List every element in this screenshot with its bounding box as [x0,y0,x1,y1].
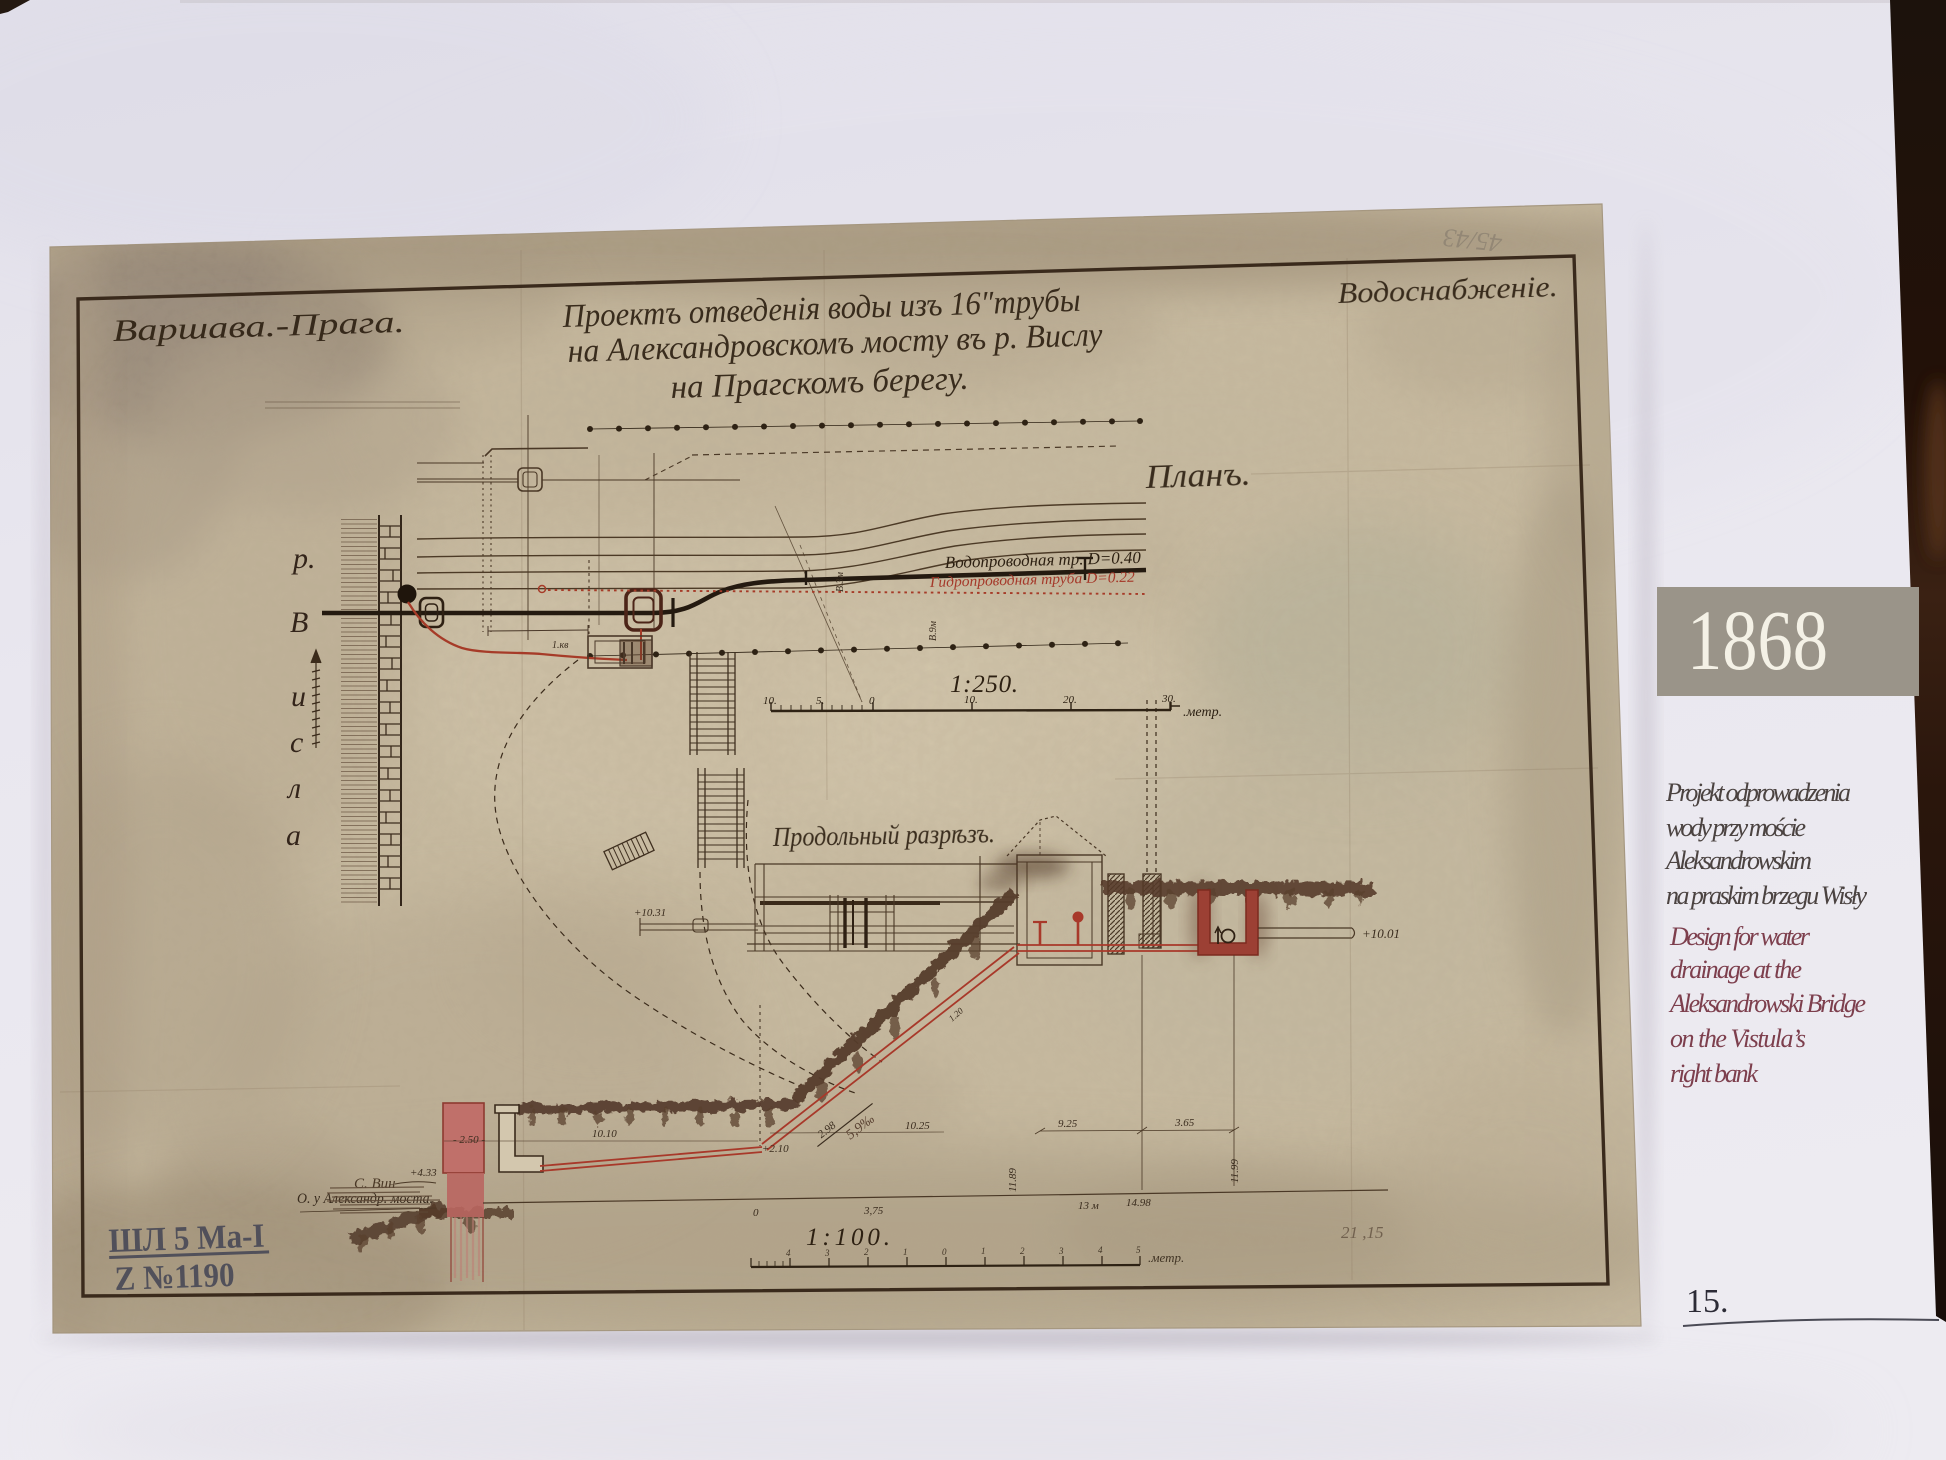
svg-text:1868: 1868 [1687,592,1828,688]
svg-text:11.99: 11.99 [1229,1159,1241,1183]
svg-text:15.: 15. [1686,1283,1729,1320]
svg-text:1:250.: 1:250. [950,671,1018,698]
svg-text:Aleksandrowski Bridge: Aleksandrowski Bridge [1668,989,1866,1018]
svg-text:on the Vistula’s: on the Vistula’s [1670,1024,1806,1053]
svg-text:+2.10: +2.10 [762,1143,789,1155]
svg-text:3: 3 [1058,1246,1064,1256]
svg-text:10.: 10. [964,694,978,706]
svg-text:10.25: 10.25 [905,1120,930,1132]
svg-text:13 м: 13 м [1078,1200,1099,1212]
svg-text:Design for water: Design for water [1669,922,1811,951]
svg-text:0: 0 [869,695,875,707]
svg-text:21 ,15: 21 ,15 [1341,1223,1384,1242]
svg-text:В.9м: В.9м [928,620,939,641]
svg-text:30.: 30. [1161,693,1176,705]
svg-text:1.кв: 1.кв [552,640,569,651]
svg-text:45/43: 45/43 [1441,223,1503,258]
svg-text:+10.01: +10.01 [1362,926,1400,941]
svg-text:С. Вин: С. Вин [354,1176,396,1192]
svg-text:Aleksandrowskim: Aleksandrowskim [1664,846,1812,875]
svg-text:11.89: 11.89 [1007,1168,1019,1192]
svg-text:Водоснабженіе.: Водоснабженіе. [1337,270,1558,310]
svg-text:+4.33: +4.33 [410,1167,437,1179]
svg-text:wody przy moście: wody przy moście [1666,813,1806,842]
svg-text:4: 4 [1098,1245,1103,1255]
svg-text:5: 5 [1136,1245,1141,1255]
svg-text:2: 2 [1020,1246,1025,1256]
svg-text:.метр.: .метр. [1148,1250,1184,1265]
svg-text:2: 2 [864,1247,869,1257]
svg-text:1: 1 [903,1247,908,1257]
svg-text:20.: 20. [1063,694,1077,706]
svg-text:Продольный разрѣзъ.: Продольный разрѣзъ. [772,818,995,852]
svg-text:10.: 10. [763,695,777,707]
svg-text:5.: 5. [816,695,824,707]
svg-text:10.10: 10.10 [592,1128,617,1140]
svg-text:с: с [290,726,303,759]
svg-text:14.98: 14.98 [1126,1197,1151,1209]
svg-text:л: л [286,772,301,805]
svg-text:drainage at the: drainage at the [1670,955,1802,984]
svg-text:Z №1190: Z №1190 [114,1257,235,1298]
svg-text:В: В [290,606,308,639]
svg-text:0: 0 [753,1207,759,1219]
svg-text:3.65: 3.65 [1174,1117,1195,1129]
svg-text:р.: р. [291,542,316,575]
svg-text:В.3м: В.3м [835,571,846,592]
svg-text:1: 1 [981,1246,986,1256]
svg-text:right bank: right bank [1670,1059,1758,1088]
svg-text:+10.31: +10.31 [634,907,666,919]
svg-text:9.25: 9.25 [1058,1118,1078,1130]
svg-text:Projekt odprowadzenia: Projekt odprowadzenia [1665,778,1851,807]
svg-text:3: 3 [824,1248,830,1258]
svg-text:na praskim brzegu Wisły: na praskim brzegu Wisły [1666,881,1867,910]
svg-text:а: а [286,819,301,852]
svg-text:Планъ.: Планъ. [1144,456,1251,496]
svg-text:.метр.: .метр. [1183,705,1222,720]
svg-text:и: и [291,680,306,713]
svg-text:0: 0 [942,1247,947,1257]
svg-text:- 2.50 -: - 2.50 - [453,1134,485,1146]
svg-text:4: 4 [786,1248,791,1258]
svg-text:3,75: 3,75 [863,1205,884,1217]
